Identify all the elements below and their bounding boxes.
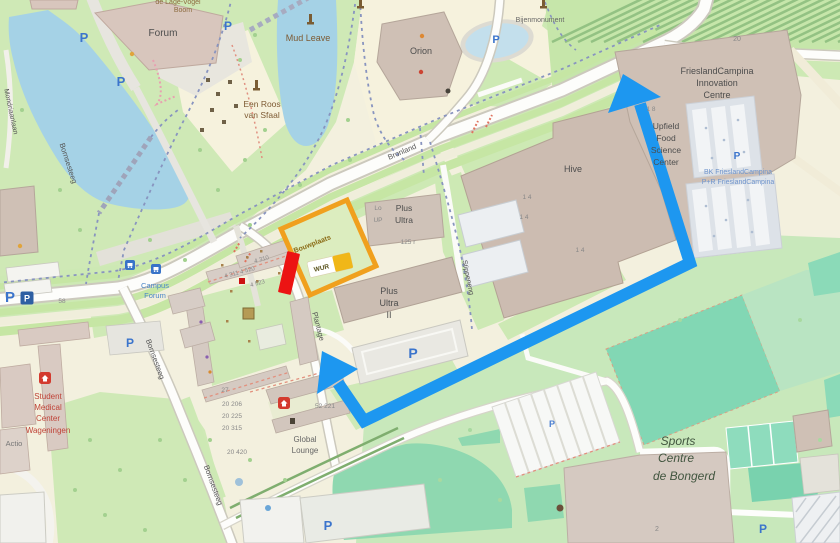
svg-text:P: P xyxy=(224,19,232,33)
svg-text:20 315: 20 315 xyxy=(222,425,242,432)
svg-text:van Sfaal: van Sfaal xyxy=(244,110,280,120)
svg-text:20 206: 20 206 xyxy=(222,401,242,408)
svg-text:II: II xyxy=(386,310,391,320)
svg-text:52 221: 52 221 xyxy=(315,403,335,410)
svg-text:BK FrieslandCampina: BK FrieslandCampina xyxy=(704,169,772,176)
svg-text:Plus: Plus xyxy=(380,286,398,296)
svg-text:Hive: Hive xyxy=(564,164,582,174)
svg-text:P: P xyxy=(408,345,417,361)
svg-text:20 420: 20 420 xyxy=(227,449,247,456)
svg-text:Student: Student xyxy=(34,392,62,401)
svg-text:Actio: Actio xyxy=(6,439,23,448)
svg-text:2: 2 xyxy=(655,526,659,533)
svg-text:Boom: Boom xyxy=(174,7,192,14)
svg-text:P: P xyxy=(759,522,767,536)
svg-text:Wageningen: Wageningen xyxy=(26,426,71,435)
svg-text:125 r: 125 r xyxy=(401,239,417,246)
svg-text:P: P xyxy=(492,34,499,46)
svg-text:Upfield: Upfield xyxy=(653,121,680,131)
svg-text:de Bongerd: de Bongerd xyxy=(653,469,715,483)
svg-text:P+R FrieslandCampina: P+R FrieslandCampina xyxy=(702,179,775,186)
svg-text:Sports: Sports xyxy=(661,434,696,448)
svg-text:1 8: 1 8 xyxy=(646,106,655,113)
svg-text:Centre: Centre xyxy=(703,90,730,100)
svg-text:27: 27 xyxy=(221,387,229,394)
svg-text:P: P xyxy=(80,30,89,45)
svg-text:Forum: Forum xyxy=(144,291,166,300)
svg-text:UP: UP xyxy=(373,217,382,224)
svg-text:58: 58 xyxy=(58,298,66,305)
svg-text:Ultra: Ultra xyxy=(379,298,398,308)
svg-text:FrieslandCampina: FrieslandCampina xyxy=(680,66,753,76)
svg-text:Lounge: Lounge xyxy=(292,446,319,455)
svg-text:Center: Center xyxy=(653,157,679,167)
svg-text:1 4: 1 4 xyxy=(522,194,531,201)
svg-text:Lo: Lo xyxy=(374,205,382,212)
svg-text:Orion: Orion xyxy=(410,46,432,56)
svg-text:1 4: 1 4 xyxy=(519,214,528,221)
svg-text:P: P xyxy=(734,151,741,162)
svg-text:Forum: Forum xyxy=(149,28,178,39)
svg-text:Plus: Plus xyxy=(396,203,413,213)
svg-text:Innovation: Innovation xyxy=(696,78,738,88)
svg-text:Science: Science xyxy=(651,145,682,155)
svg-text:P: P xyxy=(5,289,15,306)
svg-text:Center: Center xyxy=(36,414,60,423)
svg-text:Medical: Medical xyxy=(34,403,62,412)
svg-text:20: 20 xyxy=(733,36,741,43)
svg-text:Een Roos: Een Roos xyxy=(243,99,280,109)
svg-text:de Lage-Vogel: de Lage-Vogel xyxy=(155,0,201,6)
svg-text:P: P xyxy=(24,294,30,304)
svg-text:Global: Global xyxy=(293,435,316,444)
svg-text:Centre: Centre xyxy=(658,451,694,465)
svg-text:Food: Food xyxy=(656,133,676,143)
svg-text:Ultra: Ultra xyxy=(395,215,413,225)
svg-text:P: P xyxy=(117,74,126,89)
svg-text:P: P xyxy=(126,336,134,350)
svg-text:P: P xyxy=(324,518,333,533)
svg-text:Mud Leave: Mud Leave xyxy=(286,33,331,43)
svg-text:1 4: 1 4 xyxy=(575,247,584,254)
svg-text:Bijenmonument: Bijenmonument xyxy=(516,17,565,24)
svg-text:20 225: 20 225 xyxy=(222,413,242,420)
svg-text:P: P xyxy=(549,419,555,429)
svg-text:Campus: Campus xyxy=(141,281,169,290)
